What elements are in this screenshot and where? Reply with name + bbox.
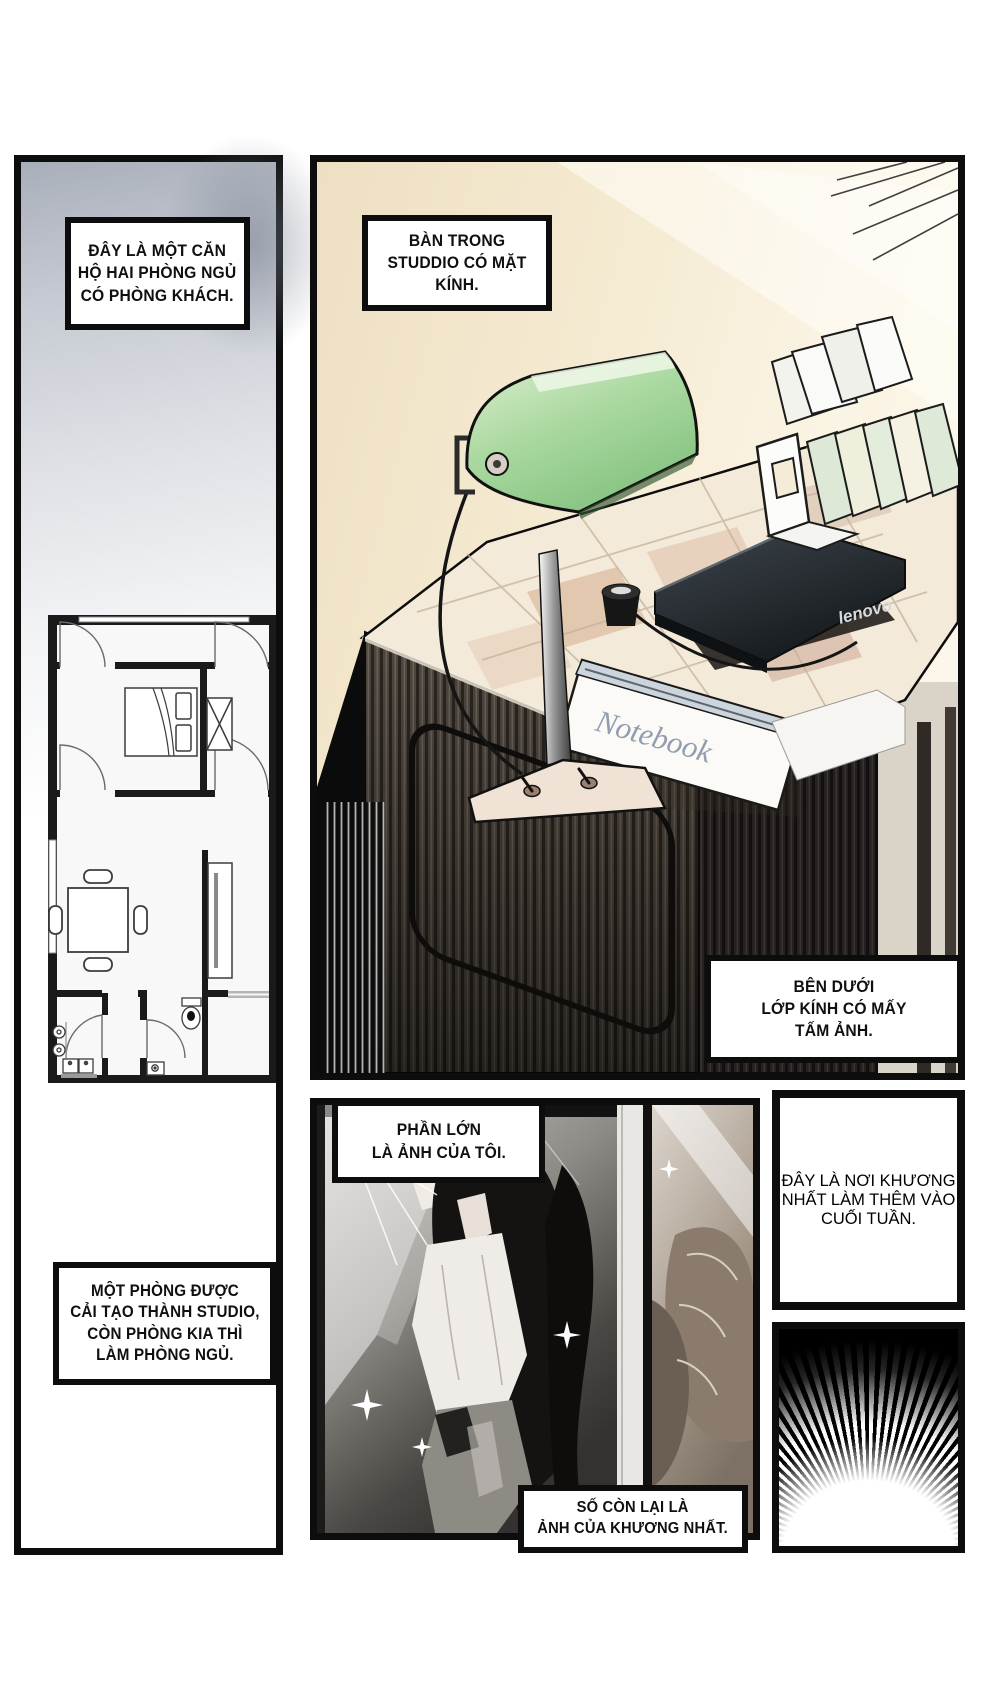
panel-workplace-caption: ĐÂY LÀ NƠI KHƯƠNG NHẤT LÀM THÊM VÀO CUỐI…: [772, 1090, 965, 1310]
caption-desk-top-text: BÀN TRONG STUDDIO CÓ MẶT KÍNH.: [375, 230, 539, 296]
caption-workplace-text: ĐÂY LÀ NƠI KHƯƠNG NHẤT LÀM THÊM VÀO CUỐI…: [780, 1172, 957, 1229]
caption-photos-top: PHẦN LỚN LÀ ẢNH CỦA TÔI.: [332, 1100, 545, 1183]
caption-desk-bottom: BÊN DƯỚI LỚP KÍNH CÓ MẤY TẤM ẢNH.: [705, 955, 963, 1063]
caption-desk-top: BÀN TRONG STUDDIO CÓ MẶT KÍNH.: [362, 215, 552, 311]
caption-apartment-bottom: MỘT PHÒNG ĐƯỢC CẢI TẠO THÀNH STUDIO, CÒN…: [53, 1262, 276, 1385]
floor-plan: [21, 570, 276, 1090]
caption-apartment-top: ĐÂY LÀ MỘT CĂN HỘ HAI PHÒNG NGỦ CÓ PHÒNG…: [65, 217, 250, 330]
photo-frame-edge: [617, 1105, 643, 1533]
panel-burst: [772, 1322, 965, 1553]
caption-apartment-top-text: ĐÂY LÀ MỘT CĂN HỘ HAI PHÒNG NGỦ CÓ PHÒNG…: [78, 240, 236, 306]
comic-page: Notebook lenovo: [0, 0, 1000, 1703]
burst-effect: [779, 1329, 958, 1546]
floorplan-floor: [48, 615, 276, 1083]
caption-photos-bottom: SỐ CÒN LẠI LÀ ẢNH CỦA KHƯƠNG NHẤT.: [518, 1485, 748, 1553]
photo-second: [652, 1105, 753, 1533]
caption-photos-bottom-text: SỐ CÒN LẠI LÀ ẢNH CỦA KHƯƠNG NHẤT.: [538, 1498, 729, 1540]
caption-apartment-bottom-text: MỘT PHÒNG ĐƯỢC CẢI TẠO THÀNH STUDIO, CÒN…: [70, 1281, 259, 1367]
floorplan-cabinet: [208, 863, 232, 978]
caption-photos-top-text: PHẦN LỚN LÀ ẢNH CỦA TÔI.: [371, 1119, 505, 1163]
floorplan-wardrobe: [207, 698, 232, 750]
caption-desk-bottom-text: BÊN DƯỚI LỚP KÍNH CÓ MẤY TẤM ẢNH.: [761, 976, 906, 1042]
floorplan-bed: [125, 688, 197, 756]
caption-workplace: ĐÂY LÀ NƠI KHƯƠNG NHẤT LÀM THÊM VÀO CUỐI…: [780, 1098, 957, 1302]
lamp-knob: [602, 584, 640, 626]
